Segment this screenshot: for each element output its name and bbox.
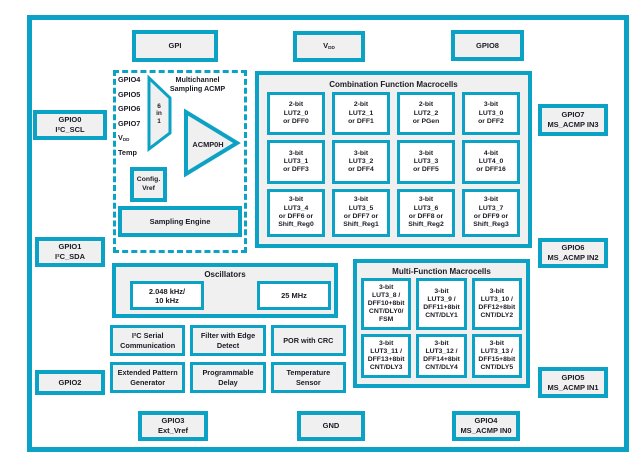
macrocell: 2-bit LUT2_2 or PGen xyxy=(397,92,455,135)
acmp-input: GPIO4 xyxy=(118,74,156,89)
macrocell: 3-bit LUT3_12 / DFF14+8bit CNT/DLY4 xyxy=(416,334,466,378)
acmp-input-label: GPIO6 xyxy=(118,104,140,113)
acmp-input-label: GPIO7 xyxy=(118,119,140,128)
pin-gpio3-ext-vref: GPIO3 Ext_Vref xyxy=(138,411,208,441)
acmp-input-sub: DD xyxy=(123,137,130,142)
sampling-engine-box: Sampling Engine xyxy=(118,206,242,237)
pin-gpio1-i2c-sda: GPIO1 I²C_SDA xyxy=(35,237,105,267)
pin-gpi: GPI xyxy=(132,30,218,62)
macrocell: 3-bit LUT3_7 or DFF9 or Shift_Reg3 xyxy=(462,189,520,237)
oscillator-cell: 25 MHz xyxy=(257,281,331,310)
pin-gpio7-ms-acmp-in3: GPIO7 MS_ACMP IN3 xyxy=(538,104,608,136)
macrocell: 4-bit LUT4_0 or DFF16 xyxy=(462,140,520,183)
acmp-input: Temp xyxy=(118,147,156,162)
macrocell: 3-bit LUT3_9 / DFF11+8bit CNT/DLY1 xyxy=(416,278,466,330)
macrocell: 2-bit LUT2_0 or DFF0 xyxy=(267,92,325,135)
macrocell: 3-bit LUT3_3 or DFF5 xyxy=(397,140,455,183)
block-extended-pattern-generator: Extended Pattern Generator xyxy=(110,362,185,393)
multi-function-macrocells-grid: 3-bit LUT3_8 / DFF10+8bit CNT/DLY0/ FSM … xyxy=(361,278,522,378)
macrocell: 3-bit LUT3_10 / DFF12+8bit CNT/DLY2 xyxy=(472,278,522,330)
multi-function-macrocells-title: Multi-Function Macrocells xyxy=(361,266,522,278)
mux-6in1-label: 6 in 1 xyxy=(147,93,171,135)
block-i2c-serial-communication: I²C Serial Communication xyxy=(110,325,185,356)
macrocell: 3-bit LUT3_5 or DFF7 or Shift_Reg1 xyxy=(332,189,390,237)
pin-gpio4-ms-acmp-in0: GPIO4 MS_ACMP IN0 xyxy=(452,411,520,441)
acmp-comparator-label: ACMP0H xyxy=(182,140,234,149)
combination-function-macrocells: Combination Function Macrocells 2-bit LU… xyxy=(255,71,532,248)
acmp-input-label: Temp xyxy=(118,148,137,157)
macrocell: 3-bit LUT3_4 or DFF6 or Shift_Reg0 xyxy=(267,189,325,237)
oscillators-block: Oscillators 2.048 kHz/ 10 kHz 25 MHz xyxy=(112,263,338,318)
pin-gnd: GND xyxy=(297,411,365,441)
pin-gpio6-ms-acmp-in2: GPIO6 MS_ACMP IN2 xyxy=(538,238,608,268)
acmp-input-label: GPIO4 xyxy=(118,75,140,84)
pin-gpio2: GPIO2 xyxy=(35,370,105,395)
acmp-block-title: Multichannel Sampling ACMP xyxy=(150,75,245,94)
combination-macrocells-grid: 2-bit LUT2_0 or DFF0 2-bit LUT2_1 or DFF… xyxy=(267,92,520,237)
pin-gpio8: GPIO8 xyxy=(451,30,524,61)
oscillator-cell: 2.048 kHz/ 10 kHz xyxy=(130,281,204,310)
macrocell: 3-bit LUT3_11 / DFF13+8bit CNT/DLY3 xyxy=(361,334,411,378)
config-vref-box: Config. Vref xyxy=(130,167,167,202)
macrocell: 3-bit LUT3_6 or DFF8 or Shift_Reg2 xyxy=(397,189,455,237)
oscillators-title: Oscillators xyxy=(116,270,334,279)
combination-macrocells-title: Combination Function Macrocells xyxy=(267,79,520,92)
macrocell: 3-bit LUT3_2 or DFF4 xyxy=(332,140,390,183)
peripheral-blocks-grid: I²C Serial Communication Filter with Edg… xyxy=(110,325,346,393)
acmp-input-label: GPIO5 xyxy=(118,90,140,99)
vdd-label: VDD xyxy=(323,41,335,51)
pin-vdd: VDD xyxy=(293,31,365,62)
block-temperature-sensor: Temperature Sensor xyxy=(271,362,346,393)
macrocell: 3-bit LUT3_8 / DFF10+8bit CNT/DLY0/ FSM xyxy=(361,278,411,330)
macrocell: 3-bit LUT3_0 or DFF2 xyxy=(462,92,520,135)
pin-gpio0-i2c-scl: GPIO0 I²C_SCL xyxy=(33,110,107,140)
chip-block-diagram: GPI VDD GPIO8 GPIO0 I²C_SCL GPIO1 I²C_SD… xyxy=(0,0,633,461)
block-filter-with-edge-detect: Filter with Edge Detect xyxy=(190,325,265,356)
multi-function-macrocells: Multi-Function Macrocells 3-bit LUT3_8 /… xyxy=(353,259,530,388)
pin-gpio5-ms-acmp-in1: GPIO5 MS_ACMP IN1 xyxy=(538,367,608,398)
block-programmable-delay: Programmable Delay xyxy=(190,362,265,393)
macrocell: 2-bit LUT2_1 or DFF1 xyxy=(332,92,390,135)
oscillators-row: 2.048 kHz/ 10 kHz 25 MHz xyxy=(116,279,334,310)
macrocell: 3-bit LUT3_1 or DFF3 xyxy=(267,140,325,183)
macrocell: 3-bit LUT3_13 / DFF15+8bit CNT/DLY5 xyxy=(472,334,522,378)
vdd-subscript: DD xyxy=(328,46,335,51)
block-por-with-crc: POR with CRC xyxy=(271,325,346,356)
